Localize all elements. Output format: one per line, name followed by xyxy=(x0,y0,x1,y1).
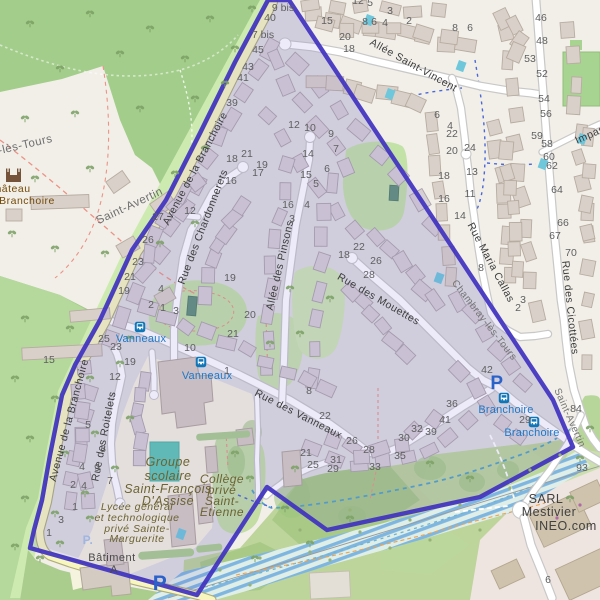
svg-text:2: 2 xyxy=(406,15,412,27)
svg-text:4: 4 xyxy=(382,17,388,29)
svg-text:4: 4 xyxy=(79,461,85,473)
svg-text:19: 19 xyxy=(118,285,130,297)
svg-text:20: 20 xyxy=(339,31,351,43)
svg-text:3: 3 xyxy=(520,294,526,306)
svg-text:22: 22 xyxy=(446,128,458,140)
svg-text:62: 62 xyxy=(546,160,558,172)
svg-text:23: 23 xyxy=(132,256,144,268)
svg-text:58: 58 xyxy=(541,138,553,150)
svg-text:66: 66 xyxy=(557,217,569,229)
svg-text:70: 70 xyxy=(565,247,577,259)
svg-text:8: 8 xyxy=(478,262,484,274)
svg-text:15: 15 xyxy=(43,354,55,366)
svg-text:26: 26 xyxy=(370,255,382,267)
svg-text:48: 48 xyxy=(536,35,548,47)
svg-text:A: A xyxy=(110,564,118,576)
svg-text:30: 30 xyxy=(398,432,410,444)
svg-text:Marguerite: Marguerite xyxy=(109,533,164,545)
svg-text:3: 3 xyxy=(387,5,393,17)
svg-text:13: 13 xyxy=(466,166,478,178)
svg-text:3: 3 xyxy=(58,514,64,526)
svg-text:16: 16 xyxy=(225,175,237,187)
svg-text:84: 84 xyxy=(570,403,582,415)
svg-text:4: 4 xyxy=(304,199,310,211)
svg-text:14: 14 xyxy=(302,148,314,160)
svg-text:14: 14 xyxy=(454,210,466,222)
svg-text:18: 18 xyxy=(438,170,450,182)
svg-text:39: 39 xyxy=(425,426,437,438)
svg-text:SARL: SARL xyxy=(529,492,564,506)
svg-text:INEO.com: INEO.com xyxy=(535,519,597,533)
svg-text:56: 56 xyxy=(540,108,552,120)
svg-text:22: 22 xyxy=(319,410,331,422)
svg-text:6: 6 xyxy=(371,16,377,28)
svg-text:8: 8 xyxy=(362,16,368,28)
svg-text:P: P xyxy=(153,572,168,595)
svg-text:21: 21 xyxy=(124,271,136,283)
svg-text:15: 15 xyxy=(300,169,312,181)
svg-text:16: 16 xyxy=(282,199,294,211)
svg-text:24: 24 xyxy=(464,142,476,154)
svg-text:8: 8 xyxy=(306,385,312,397)
svg-text:1: 1 xyxy=(46,527,52,539)
svg-text:3: 3 xyxy=(289,213,295,225)
svg-text:93: 93 xyxy=(576,462,588,474)
svg-text:33: 33 xyxy=(369,461,381,473)
svg-text:3: 3 xyxy=(173,305,179,317)
svg-text:2: 2 xyxy=(515,302,521,314)
svg-text:Branchoire: Branchoire xyxy=(504,427,559,439)
svg-text:7 bis: 7 bis xyxy=(252,29,274,41)
svg-text:6: 6 xyxy=(324,163,330,175)
svg-text:32: 32 xyxy=(411,423,423,435)
svg-text:39: 39 xyxy=(226,97,238,109)
svg-text:9: 9 xyxy=(94,462,100,474)
svg-text:64: 64 xyxy=(551,184,563,196)
svg-text:67: 67 xyxy=(549,230,561,242)
svg-text:35: 35 xyxy=(394,450,406,462)
svg-text:21: 21 xyxy=(227,328,239,340)
svg-text:23: 23 xyxy=(110,341,122,353)
svg-text:9: 9 xyxy=(328,128,334,140)
svg-text:P.: P. xyxy=(83,533,94,547)
svg-text:52: 52 xyxy=(536,68,548,80)
svg-text:Branchoire: Branchoire xyxy=(0,195,55,207)
svg-text:12: 12 xyxy=(109,371,121,383)
svg-text:22: 22 xyxy=(353,241,365,253)
svg-text:26: 26 xyxy=(142,234,154,246)
svg-text:10: 10 xyxy=(184,342,196,354)
svg-text:Mestivier: Mestivier xyxy=(522,505,577,519)
svg-text:19: 19 xyxy=(224,272,236,284)
svg-text:18: 18 xyxy=(343,43,355,55)
svg-text:2: 2 xyxy=(148,299,154,311)
svg-text:12: 12 xyxy=(352,0,364,7)
svg-text:4: 4 xyxy=(158,283,164,295)
svg-text:1: 1 xyxy=(72,501,78,513)
svg-text:Groupe: Groupe xyxy=(146,455,191,469)
svg-text:Etienne: Etienne xyxy=(200,505,244,519)
svg-text:19: 19 xyxy=(124,356,136,368)
svg-text:6: 6 xyxy=(545,574,551,586)
svg-text:41: 41 xyxy=(439,414,451,426)
svg-text:10: 10 xyxy=(304,122,316,134)
svg-text:18: 18 xyxy=(338,249,350,261)
svg-text:54: 54 xyxy=(538,93,550,105)
svg-text:42: 42 xyxy=(481,364,493,376)
svg-text:7: 7 xyxy=(333,143,339,155)
svg-text:5: 5 xyxy=(313,178,319,190)
svg-text:46: 46 xyxy=(535,12,547,24)
svg-text:11: 11 xyxy=(465,188,476,200)
svg-text:41: 41 xyxy=(237,72,249,84)
svg-text:36: 36 xyxy=(446,398,458,410)
svg-text:scolaire: scolaire xyxy=(144,469,191,483)
svg-text:1: 1 xyxy=(224,365,230,377)
svg-text:28: 28 xyxy=(363,269,375,281)
svg-text:26: 26 xyxy=(346,435,358,447)
svg-text:P: P xyxy=(490,373,503,394)
svg-text:Bâtiment: Bâtiment xyxy=(88,552,135,564)
svg-text:6: 6 xyxy=(434,109,440,121)
svg-text:Vanneaux: Vanneaux xyxy=(116,333,167,345)
svg-text:15: 15 xyxy=(321,15,333,27)
svg-text:3: 3 xyxy=(100,443,106,455)
svg-text:25: 25 xyxy=(98,333,110,345)
svg-text:21: 21 xyxy=(241,148,253,160)
svg-text:29: 29 xyxy=(327,463,339,475)
svg-text:40: 40 xyxy=(264,12,276,24)
svg-text:17: 17 xyxy=(252,167,264,179)
svg-text:28: 28 xyxy=(363,444,375,456)
svg-text:5: 5 xyxy=(85,419,91,431)
svg-text:53: 53 xyxy=(524,53,536,65)
svg-text:45: 45 xyxy=(252,44,264,56)
svg-text:2: 2 xyxy=(70,479,76,491)
svg-text:12: 12 xyxy=(288,119,300,131)
svg-text:20: 20 xyxy=(244,309,256,321)
svg-text:7: 7 xyxy=(107,475,113,487)
svg-text:1: 1 xyxy=(160,302,166,314)
svg-text:25: 25 xyxy=(307,459,319,471)
svg-text:5: 5 xyxy=(367,0,373,9)
svg-text:27: 27 xyxy=(152,211,164,223)
svg-text:8: 8 xyxy=(452,22,458,34)
svg-text:21: 21 xyxy=(300,447,312,459)
svg-text:29: 29 xyxy=(519,414,531,426)
svg-text:hâteau: hâteau xyxy=(0,183,31,195)
svg-text:16: 16 xyxy=(438,193,450,205)
svg-text:12: 12 xyxy=(184,205,196,217)
svg-text:20: 20 xyxy=(446,145,458,157)
svg-text:18: 18 xyxy=(226,153,238,165)
svg-text:6: 6 xyxy=(467,22,473,34)
svg-text:4: 4 xyxy=(81,480,87,492)
